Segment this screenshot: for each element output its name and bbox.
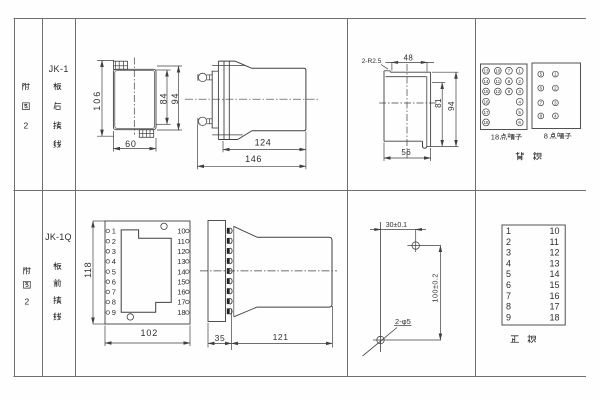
svg-text:5: 5 [518,110,521,115]
svg-text:16: 16 [177,288,185,297]
svg-text:2: 2 [24,120,29,130]
svg-text:8: 8 [508,79,511,84]
svg-text:14: 14 [483,79,489,84]
svg-text:106: 106 [92,90,102,111]
svg-text:10: 10 [495,69,501,74]
svg-text:15: 15 [550,280,560,290]
svg-text:3: 3 [506,248,511,258]
svg-text:15: 15 [483,89,489,94]
svg-text:13: 13 [550,258,560,268]
svg-text:10: 10 [177,227,185,236]
svg-text:11: 11 [177,237,185,246]
svg-text:4: 4 [554,114,557,119]
svg-text:12: 12 [550,248,560,258]
svg-text:6: 6 [518,120,521,125]
svg-text:18: 18 [483,120,489,125]
svg-text:94: 94 [170,93,180,105]
svg-text:1: 1 [112,227,116,236]
svg-text:102: 102 [140,328,158,338]
svg-text:3: 3 [554,100,557,105]
svg-text:60: 60 [125,139,137,149]
svg-text:121: 121 [273,332,289,342]
svg-text:8: 8 [540,114,543,119]
svg-text:30±0.1: 30±0.1 [386,222,407,229]
svg-text:7: 7 [508,69,511,74]
svg-text:100±0.2: 100±0.2 [430,273,439,302]
svg-text:1: 1 [518,69,521,74]
svg-text:8: 8 [544,132,548,141]
svg-text:JK-1: JK-1 [49,64,69,74]
svg-text:48: 48 [404,54,414,63]
svg-text:8: 8 [112,298,116,307]
svg-text:124: 124 [255,137,272,147]
svg-text:4: 4 [506,258,511,268]
svg-text:5: 5 [112,267,116,276]
svg-text:13: 13 [177,257,185,266]
svg-text:5: 5 [506,269,511,279]
svg-text:7: 7 [506,291,511,301]
svg-text:118: 118 [83,262,93,278]
svg-text:1: 1 [506,226,511,236]
svg-text:5: 5 [540,72,543,77]
svg-text:16: 16 [483,99,489,104]
svg-text:4: 4 [112,257,116,266]
svg-text:18: 18 [550,312,560,322]
svg-text:9: 9 [506,312,511,322]
svg-text:JK-1Q: JK-1Q [45,232,72,242]
svg-text:2: 2 [518,79,521,84]
svg-text:35: 35 [215,333,226,343]
svg-text:11: 11 [550,237,559,247]
svg-text:2-R2.5: 2-R2.5 [362,58,382,65]
svg-text:2: 2 [112,237,116,246]
svg-text:9: 9 [112,308,116,317]
svg-text:14: 14 [550,269,560,279]
svg-text:2: 2 [506,237,511,247]
svg-text:6: 6 [506,280,511,290]
svg-text:2: 2 [554,86,557,91]
svg-text:10: 10 [550,226,560,236]
svg-text:7: 7 [112,288,116,297]
svg-text:17: 17 [483,110,489,115]
svg-text:81: 81 [434,98,443,108]
svg-text:12: 12 [495,89,501,94]
svg-text:14: 14 [177,267,185,276]
svg-text:6: 6 [540,86,543,91]
svg-text:16: 16 [550,291,560,301]
svg-text:3: 3 [518,89,521,94]
svg-text:7: 7 [540,100,543,105]
svg-text:8: 8 [506,302,511,312]
svg-text:84: 84 [159,93,169,105]
svg-text:2: 2 [25,296,30,306]
svg-text:17: 17 [177,298,185,307]
svg-text:15: 15 [177,277,185,286]
svg-text:12: 12 [177,247,185,256]
svg-text:3: 3 [112,247,116,256]
svg-text:4: 4 [518,99,521,104]
svg-text:18: 18 [177,308,185,317]
svg-text:18: 18 [491,133,499,142]
svg-text:2-φ5: 2-φ5 [395,317,411,326]
svg-text:94: 94 [447,101,456,111]
svg-text:56: 56 [401,148,411,157]
svg-text:1: 1 [554,72,557,77]
svg-text:9: 9 [508,89,511,94]
svg-text:6: 6 [112,277,116,286]
svg-text:11: 11 [495,79,500,84]
svg-text:17: 17 [550,302,560,312]
svg-text:146: 146 [245,154,262,164]
svg-text:13: 13 [483,69,489,74]
